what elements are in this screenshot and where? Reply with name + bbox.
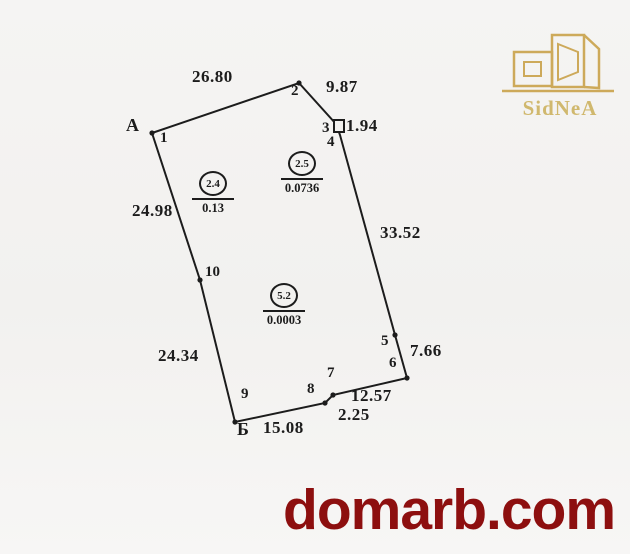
section-marker-2.5: 2.50.0736 bbox=[281, 151, 323, 196]
section-number: 2.5 bbox=[288, 151, 316, 176]
distance-7-8: 2.25 bbox=[338, 406, 370, 423]
section-marker-2.4: 2.40.13 bbox=[192, 171, 234, 216]
vertex-5: 5 bbox=[381, 334, 389, 349]
section-underline bbox=[192, 198, 234, 200]
vertex-7: 7 bbox=[327, 366, 335, 381]
distance-3-4: 1.94 bbox=[346, 117, 378, 134]
section-marker-5.2: 5.20.0003 bbox=[263, 283, 305, 328]
vertex-9: 9 bbox=[241, 387, 249, 402]
parcel-plan: АБ1234567891026.809.871.9433.527.6612.57… bbox=[0, 0, 630, 554]
vertex-dot-1 bbox=[149, 130, 154, 135]
vertex-6: 6 bbox=[389, 356, 397, 371]
distance-9-10: 24.34 bbox=[158, 347, 199, 364]
point-letter-b: Б bbox=[237, 420, 249, 438]
vertex-2: 2 bbox=[291, 84, 299, 99]
section-area: 0.0736 bbox=[285, 181, 319, 196]
vertex-10: 10 bbox=[205, 265, 220, 280]
vertex-8: 8 bbox=[307, 382, 315, 397]
vertex-dot-5 bbox=[330, 392, 335, 397]
section-underline bbox=[281, 178, 323, 180]
distance-6-7: 12.57 bbox=[351, 387, 392, 404]
vertex-dot-8 bbox=[197, 277, 202, 282]
section-area: 0.13 bbox=[202, 201, 224, 216]
point-letter-a: А bbox=[126, 116, 139, 134]
section-underline bbox=[263, 310, 305, 312]
distance-5-6: 7.66 bbox=[410, 342, 442, 359]
distance-2-3: 9.87 bbox=[326, 78, 358, 95]
distance-4-5: 33.52 bbox=[380, 224, 421, 241]
vertex-dot-4 bbox=[404, 375, 409, 380]
parcel-plan-lines bbox=[0, 0, 630, 554]
vertex-dot-6 bbox=[322, 400, 327, 405]
vertex-4: 4 bbox=[327, 135, 335, 150]
section-area: 0.0003 bbox=[267, 313, 301, 328]
distance-10-1: 24.98 bbox=[132, 202, 173, 219]
section-number: 5.2 bbox=[270, 283, 298, 308]
vertex-1: 1 bbox=[160, 131, 168, 146]
survey-plan-photo: SidNeA АБ1234567891026.809.871.9433.527.… bbox=[0, 0, 630, 554]
distance-8-9: 15.08 bbox=[263, 419, 304, 436]
vertex-dot-3 bbox=[392, 332, 397, 337]
section-number: 2.4 bbox=[199, 171, 227, 196]
distance-1-2: 26.80 bbox=[192, 68, 233, 85]
watermark-domarb: domarb.com bbox=[283, 482, 615, 539]
building-corner-marker bbox=[334, 120, 344, 132]
